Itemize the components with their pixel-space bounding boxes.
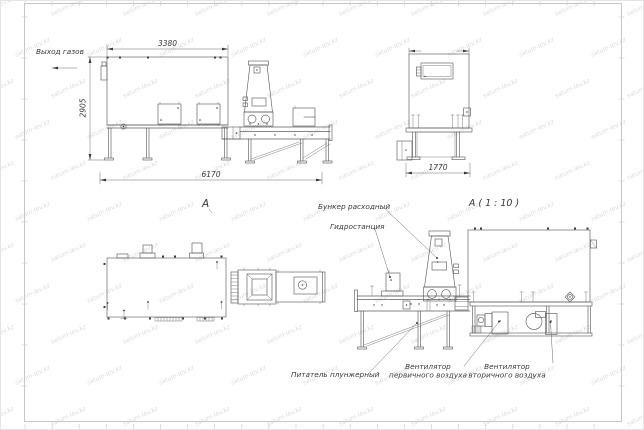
watermark-text: satum-lev.kz (554, 323, 592, 346)
watermark-text: satum-lev.kz (338, 241, 376, 264)
watermark-text: satum-lev.kz (0, 0, 16, 18)
watermark-text: satum-lev.kz (194, 77, 232, 100)
watermark-text: satum-lev.kz (14, 118, 52, 141)
watermark-text: satum-lev.kz (194, 323, 232, 346)
watermark-text: satum-lev.kz (86, 364, 124, 387)
watermark-text: satum-lev.kz (158, 364, 196, 387)
watermark-text: satum-lev.kz (50, 0, 88, 18)
watermark-text: satum-lev.kz (266, 0, 304, 18)
watermark-text: satum-lev.kz (86, 36, 124, 59)
view-marker-a: А (201, 198, 212, 213)
watermark-text: satum-lev.kz (410, 323, 448, 346)
watermark-text: satum-lev.kz (50, 159, 88, 182)
callout-plunger-feeder: Питатель плунжерный (291, 370, 380, 379)
watermark-text: satum-lev.kz (122, 241, 160, 264)
watermark-text: satum-lev.kz (482, 0, 520, 18)
front-anchor-bolts (412, 115, 465, 128)
watermark-text: satum-lev.kz (482, 77, 520, 100)
watermark-text: satum-lev.kz (554, 405, 592, 428)
dimension-height: 2905 (79, 57, 107, 160)
front-view: 1770 (397, 48, 472, 177)
watermark-text: satum-lev.kz (266, 405, 304, 428)
watermark-text: satum-lev.kz (266, 323, 304, 346)
gas-outlet-label: Выход газов (36, 47, 84, 56)
watermark-text: satum-lev.kz (266, 241, 304, 264)
watermark-text: satum-lev.kz (626, 323, 644, 346)
deck-box-2 (197, 102, 220, 126)
watermark-text: satum-lev.kz (0, 241, 16, 264)
watermark-text: satum-lev.kz (590, 282, 628, 305)
technical-drawing: satum-lev.kzsatum-lev.kzsatum-lev.kzsatu… (0, 0, 644, 430)
watermark-text: satum-lev.kz (302, 282, 340, 305)
watermark-text: satum-lev.kz (590, 118, 628, 141)
watermark-text: satum-lev.kz (374, 36, 412, 59)
deck-box-1 (158, 102, 181, 126)
watermark-text: satum-lev.kz (518, 118, 556, 141)
watermark-text: satum-lev.kz (230, 200, 268, 223)
plan-lifting-marks (107, 261, 223, 318)
plan-feeder-trough (276, 270, 325, 304)
watermark-text: satum-lev.kz (0, 77, 16, 100)
watermark-text: satum-lev.kz (554, 77, 592, 100)
watermark-text: satum-lev.kz (626, 77, 644, 100)
watermark-text: satum-lev.kz (158, 118, 196, 141)
watermark-text: satum-lev.kz (482, 159, 520, 182)
watermark-text: satum-lev.kz (590, 364, 628, 387)
watermark-text: satum-lev.kz (554, 241, 592, 264)
callout-hydraulic-station: Гидростанция (330, 222, 385, 231)
watermark-text: satum-lev.kz (86, 118, 124, 141)
watermark-text: satum-lev.kz (158, 200, 196, 223)
watermark-text: satum-lev.kz (122, 0, 160, 18)
watermark-text: satum-lev.kz (158, 282, 196, 305)
view-marker-a-label: А (201, 198, 209, 210)
watermark-text: satum-lev.kz (0, 159, 16, 182)
watermark-text: satum-lev.kz (518, 282, 556, 305)
watermark-text: satum-lev.kz (374, 282, 412, 305)
hopper-tower-detail (424, 231, 459, 301)
watermark-text: satum-lev.kz (122, 77, 160, 100)
secondary-air-fan (526, 312, 557, 335)
watermark-text: satum-lev.kz (554, 159, 592, 182)
watermark-text: satum-lev.kz (50, 77, 88, 100)
watermark-text: satum-lev.kz (410, 77, 448, 100)
watermark-text: satum-lev.kz (86, 282, 124, 305)
gas-outlet-stub (101, 66, 107, 80)
watermark-text: satum-lev.kz (410, 405, 448, 428)
watermark-text: satum-lev.kz (338, 159, 376, 182)
watermark-text: satum-lev.kz (50, 405, 88, 428)
watermark-text: satum-lev.kz (338, 0, 376, 18)
watermark-text: satum-lev.kz (122, 323, 160, 346)
watermark-text: satum-lev.kz (86, 200, 124, 223)
dim-1770: 1770 (428, 163, 447, 172)
watermark-text: satum-lev.kz (302, 118, 340, 141)
dim-6170: 6170 (201, 170, 220, 179)
watermark-text: satum-lev.kz (14, 200, 52, 223)
watermark-text: satum-lev.kz (14, 282, 52, 305)
watermark-text: satum-lev.kz (302, 36, 340, 59)
watermark-text: satum-lev.kz (626, 159, 644, 182)
watermark-text: satum-lev.kz (266, 159, 304, 182)
watermark-text: satum-lev.kz (518, 200, 556, 223)
watermark-text: satum-lev.kz (590, 200, 628, 223)
watermark-layer: satum-lev.kzsatum-lev.kzsatum-lev.kzsatu… (0, 0, 644, 428)
watermark-text: satum-lev.kz (482, 241, 520, 264)
front-door (417, 63, 454, 79)
watermark-text: satum-lev.kz (446, 118, 484, 141)
detail-view-title: А ( 1 : 10 ) (468, 198, 519, 209)
dim-2905: 2905 (79, 98, 88, 117)
watermark-text: satum-lev.kz (266, 77, 304, 100)
watermark-text: satum-lev.kz (122, 159, 160, 182)
drawing-sheet: satum-lev.kzsatum-lev.kzsatum-lev.kzsatu… (0, 0, 644, 430)
furnace-body-plan (107, 258, 226, 317)
watermark-text: satum-lev.kz (50, 323, 88, 346)
watermark-text: satum-lev.kz (338, 405, 376, 428)
watermark-text: satum-lev.kz (338, 77, 376, 100)
gas-outlet-callout: Выход газов (36, 47, 84, 69)
watermark-text: satum-lev.kz (590, 36, 628, 59)
watermark-text: satum-lev.kz (14, 364, 52, 387)
watermark-text: satum-lev.kz (554, 0, 592, 18)
watermark-text: satum-lev.kz (230, 36, 268, 59)
watermark-text: satum-lev.kz (410, 0, 448, 18)
watermark-text: satum-lev.kz (122, 405, 160, 428)
watermark-text: satum-lev.kz (194, 0, 232, 18)
watermark-text: satum-lev.kz (626, 241, 644, 264)
watermark-text: satum-lev.kz (626, 0, 644, 18)
watermark-text: satum-lev.kz (446, 36, 484, 59)
callout-primary-fan-line2: первичного воздуха (389, 371, 467, 380)
watermark-text: satum-lev.kz (230, 364, 268, 387)
callout-feed-hopper: Бункер расходный (318, 202, 390, 211)
watermark-text: satum-lev.kz (194, 405, 232, 428)
watermark-text: satum-lev.kz (0, 405, 16, 428)
watermark-text: satum-lev.kz (518, 36, 556, 59)
watermark-text: satum-lev.kz (626, 405, 644, 428)
callout-secondary-fan-line2: вторичного воздуха (468, 371, 545, 380)
watermark-text: satum-lev.kz (50, 241, 88, 264)
watermark-text: satum-lev.kz (482, 405, 520, 428)
watermark-text: satum-lev.kz (0, 323, 16, 346)
dim-3380: 3380 (158, 39, 177, 48)
